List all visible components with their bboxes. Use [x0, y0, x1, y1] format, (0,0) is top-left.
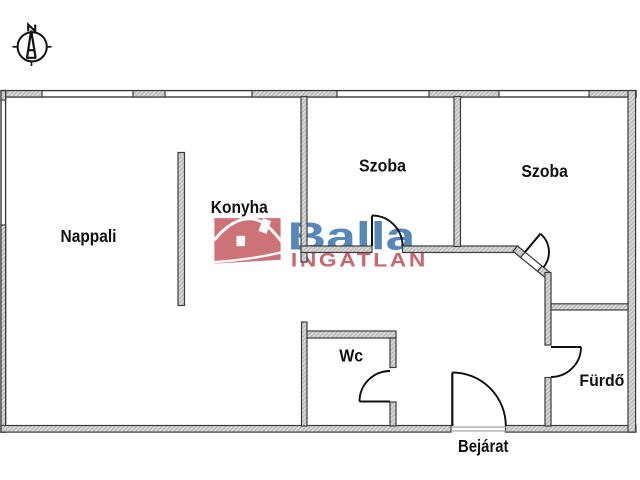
svg-text:Konyha: Konyha — [211, 197, 268, 217]
svg-text:Szoba: Szoba — [521, 161, 568, 181]
svg-text:INGATLAN: INGATLAN — [291, 250, 428, 271]
svg-text:Bejárat: Bejárat — [458, 436, 509, 456]
svg-text:Fürdő: Fürdő — [579, 371, 624, 390]
svg-text:Nappali: Nappali — [61, 226, 117, 246]
svg-text:Szoba: Szoba — [359, 155, 406, 175]
svg-text:Wc: Wc — [339, 346, 363, 366]
